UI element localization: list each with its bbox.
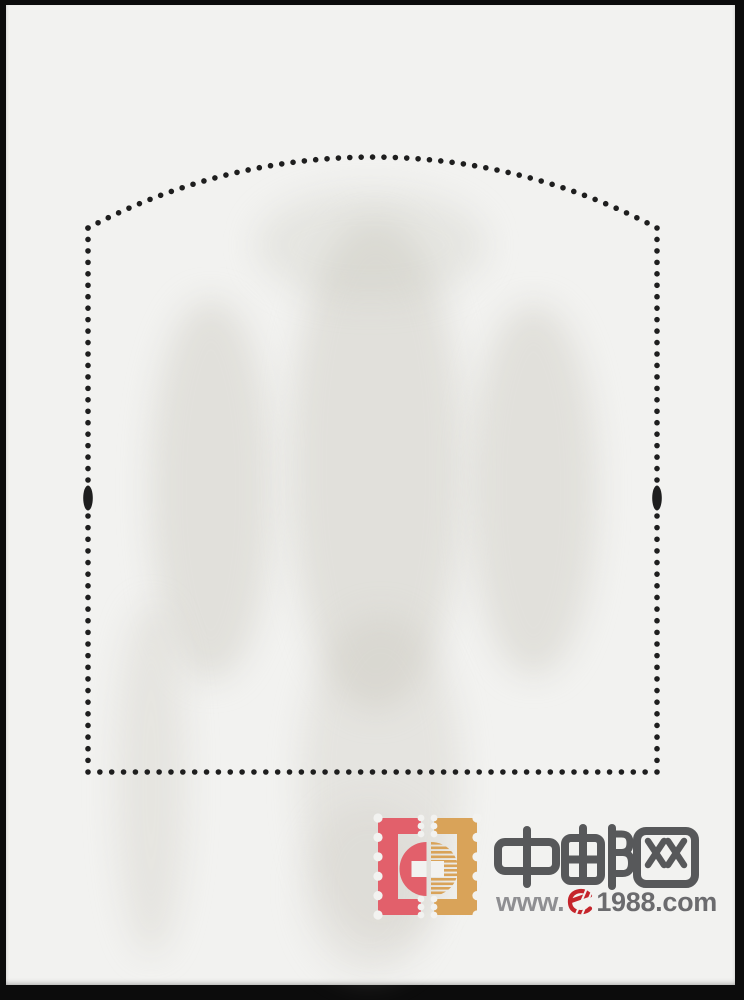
stamp-icon-center-circle xyxy=(400,842,460,896)
url-prefix: www. xyxy=(496,887,564,917)
watermark-logo: www. e 1988.com 中邮网 xyxy=(375,815,710,920)
cjk-wang-glyph xyxy=(637,831,695,884)
ghost-image-blob xyxy=(471,305,596,675)
site-name-glyphs xyxy=(498,828,695,886)
ghost-image-blob xyxy=(256,190,486,300)
ghost-image-blob xyxy=(116,605,186,955)
e-logo-icon xyxy=(566,887,595,916)
cjk-zhong-glyph xyxy=(498,830,556,884)
cjk-you-glyph xyxy=(565,828,632,886)
watermark-url: www. e 1988.com xyxy=(496,887,717,917)
ghost-image-blob xyxy=(151,300,271,680)
url-suffix: 1988.com xyxy=(596,887,717,917)
